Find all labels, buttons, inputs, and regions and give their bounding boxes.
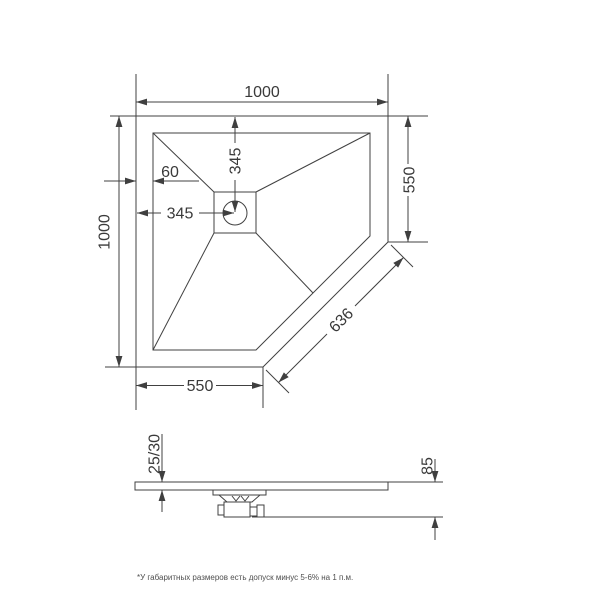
dimension-left-height: 1000 bbox=[97, 116, 137, 367]
dimension-total-height: 85 bbox=[420, 457, 437, 540]
dim-label-rim-width: 60 bbox=[161, 164, 179, 181]
dim-label-drain-from-top: 345 bbox=[228, 148, 245, 175]
dim-label-top-width: 1000 bbox=[244, 84, 280, 101]
drain-funnel-detail bbox=[232, 496, 240, 501]
drain-outlet-coupling bbox=[257, 505, 264, 517]
tolerance-footnote: *У габаритных размеров есть допуск минус… bbox=[137, 573, 353, 582]
fold-line-top-left bbox=[153, 133, 214, 192]
dimension-drain-from-left: 345 bbox=[137, 206, 234, 223]
dim-label-tray-thickness: 25/30 bbox=[147, 434, 164, 474]
fold-line-to-cut-edge bbox=[256, 233, 313, 293]
drain-side-nub bbox=[218, 505, 224, 515]
dimension-top-width: 1000 bbox=[136, 74, 388, 116]
drain-outlet-pipe bbox=[250, 507, 257, 516]
dim-label-right-side: 550 bbox=[402, 167, 419, 194]
dim-label-bottom-side: 550 bbox=[187, 378, 214, 395]
drain-funnel-detail bbox=[241, 496, 249, 501]
drain-trap-assembly bbox=[213, 490, 266, 517]
shower-tray-drawing: 1000 1000 550 550 bbox=[0, 0, 600, 600]
dimension-rim-width: 60 bbox=[104, 164, 199, 181]
dim-label-total-height: 85 bbox=[420, 457, 437, 475]
extension-line bbox=[266, 370, 289, 393]
fold-line-bottom-left bbox=[153, 233, 214, 350]
dim-label-diagonal-cut: 636 bbox=[326, 305, 357, 336]
dimension-bottom-side: 550 bbox=[136, 367, 263, 410]
dim-label-drain-from-left: 345 bbox=[167, 206, 194, 223]
drain-flange bbox=[213, 490, 266, 495]
side-view: 25/30 85 bbox=[135, 434, 443, 540]
drain-siphon-body bbox=[224, 502, 250, 517]
drawing-canvas: 1000 1000 550 550 bbox=[0, 0, 600, 600]
tray-slab-profile bbox=[135, 482, 388, 490]
dimension-line bbox=[279, 334, 328, 383]
extension-line bbox=[391, 245, 413, 267]
dimension-right-side: 550 bbox=[388, 116, 428, 242]
dimension-drain-from-top: 345 bbox=[228, 117, 245, 212]
top-view: 1000 1000 550 550 bbox=[97, 74, 429, 410]
dim-label-left-height: 1000 bbox=[97, 214, 114, 250]
fold-line-top-right bbox=[256, 133, 370, 192]
dimension-tray-thickness: 25/30 bbox=[147, 434, 164, 512]
dimension-line bbox=[355, 258, 404, 307]
